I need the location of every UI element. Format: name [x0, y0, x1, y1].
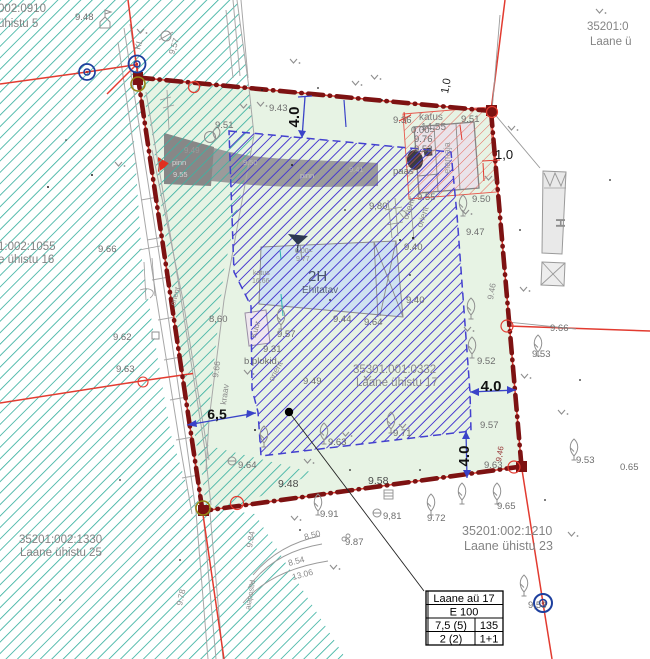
svg-text:9.66: 9.66 [98, 244, 117, 255]
svg-text:Laane ühistu 17: Laane ühistu 17 [356, 377, 438, 389]
svg-text:135: 135 [480, 620, 498, 632]
svg-text:9,81: 9,81 [383, 511, 402, 522]
svg-text:9.77: 9.77 [296, 256, 310, 263]
svg-text:E 100: E 100 [450, 607, 479, 619]
svg-text:35201:002:1330: 35201:002:1330 [19, 534, 102, 546]
svg-text:9.50: 9.50 [243, 158, 258, 167]
svg-text:35201:0: 35201:0 [587, 21, 629, 33]
svg-text:9.71: 9.71 [393, 428, 412, 439]
svg-text:9.55: 9.55 [173, 170, 188, 179]
svg-text:1:002:1055: 1:002:1055 [0, 241, 56, 253]
svg-text:4.0: 4.0 [286, 107, 303, 128]
svg-text:35301:001:0332: 35301:001:0332 [353, 364, 436, 376]
svg-text:9.57: 9.57 [480, 420, 499, 431]
svg-text:9.91: 9.91 [320, 509, 339, 520]
svg-text:9.53: 9.53 [576, 455, 595, 466]
svg-text:Laane ühistu 25: Laane ühistu 25 [20, 547, 102, 559]
svg-text:9.52: 9.52 [414, 144, 433, 155]
svg-text:9.63: 9.63 [328, 437, 347, 448]
svg-text:Laane ühistu 23: Laane ühistu 23 [464, 539, 553, 553]
svg-text:9.49: 9.49 [184, 146, 200, 155]
svg-text:4.0: 4.0 [456, 446, 473, 467]
svg-text:Laane aü 17: Laane aü 17 [433, 593, 494, 605]
svg-text:9.64: 9.64 [364, 317, 383, 328]
svg-text:H: H [553, 218, 568, 227]
svg-text:4.0: 4.0 [481, 378, 502, 395]
svg-text:katus: katus [253, 270, 270, 277]
svg-text:9.62: 9.62 [113, 332, 132, 343]
svg-text:14.55: 14.55 [421, 122, 446, 133]
svg-text:9.36: 9.36 [393, 115, 412, 126]
svg-text:6,5: 6,5 [207, 406, 227, 422]
svg-text:pinn: pinn [172, 158, 186, 167]
svg-text:elamaja: elamaja [442, 142, 452, 174]
svg-text:9,53: 9,53 [528, 600, 547, 611]
svg-text:ühistu 5: ühistu 5 [0, 18, 38, 30]
svg-text:9.43: 9.43 [269, 103, 288, 114]
svg-text:1+1: 1+1 [480, 634, 499, 646]
svg-text:9.58: 9.58 [368, 475, 389, 487]
svg-text:Ehitatav: Ehitatav [302, 285, 338, 296]
svg-text:9.55: 9.55 [417, 192, 436, 203]
svg-text:9.40: 9.40 [406, 295, 425, 306]
svg-text:paas: paas [393, 166, 414, 177]
svg-text:8,60: 8,60 [209, 314, 228, 325]
svg-text:9.57: 9.57 [277, 329, 296, 340]
svg-text:Laane ü: Laane ü [590, 36, 632, 48]
svg-text:9.48: 9.48 [278, 478, 299, 490]
svg-text:9.63: 9.63 [116, 364, 135, 375]
svg-text:9.52: 9.52 [477, 356, 496, 367]
svg-text:9.51: 9.51 [461, 114, 480, 125]
svg-text:9.47: 9.47 [466, 227, 485, 238]
svg-text:9.87: 9.87 [345, 537, 364, 548]
svg-text:9.48: 9.48 [75, 12, 94, 23]
svg-text:35201:002:1210: 35201:002:1210 [462, 524, 552, 538]
svg-text:9.50: 9.50 [472, 194, 491, 205]
svg-text:0.65: 0.65 [620, 462, 639, 473]
svg-text:0.00=: 0.00= [295, 248, 313, 255]
svg-text:002:0910: 002:0910 [0, 3, 46, 15]
svg-text:9.40: 9.40 [404, 242, 423, 253]
svg-text:9.66: 9.66 [550, 323, 569, 334]
svg-text:9.31: 9.31 [263, 344, 282, 355]
svg-text:9.51: 9.51 [215, 120, 234, 131]
svg-text:9.49: 9.49 [303, 376, 322, 387]
svg-text:9.44: 9.44 [333, 314, 352, 325]
svg-text:9,80: 9,80 [369, 201, 388, 212]
svg-text:pinn: pinn [300, 171, 314, 180]
svg-text:1,0: 1,0 [495, 147, 513, 162]
svg-text:9.64: 9.64 [238, 460, 257, 471]
svg-text:9.72: 9.72 [427, 513, 446, 524]
svg-text:9.65: 9.65 [497, 501, 516, 512]
svg-text:2 (2): 2 (2) [440, 634, 463, 646]
svg-text:7,5 (5): 7,5 (5) [435, 620, 467, 632]
svg-text:2H: 2H [308, 268, 327, 285]
svg-text:9.53: 9.53 [532, 349, 551, 360]
svg-text:9.41: 9.41 [349, 165, 364, 174]
svg-text:e ühistu 16: e ühistu 16 [0, 254, 54, 266]
svg-text:16.66: 16.66 [252, 278, 270, 285]
